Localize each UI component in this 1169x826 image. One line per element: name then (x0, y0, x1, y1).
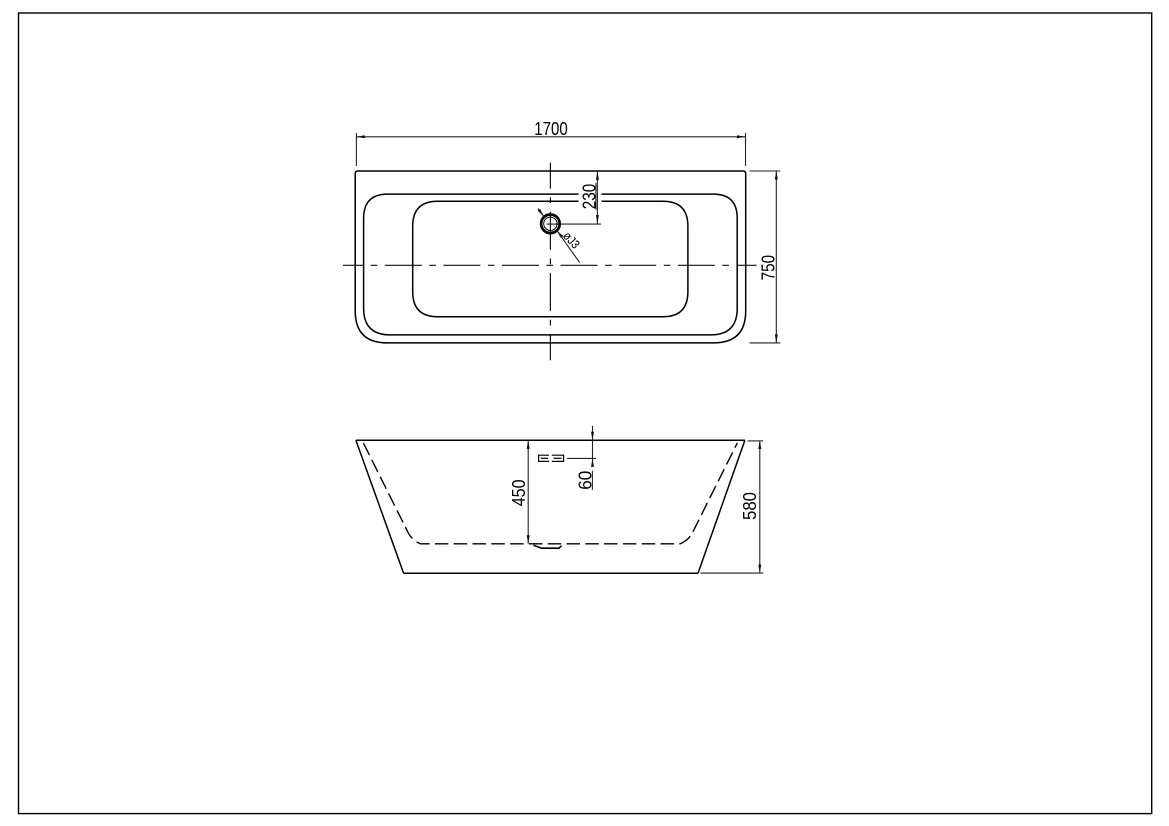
svg-text:60: 60 (575, 471, 595, 490)
svg-text:750: 750 (759, 255, 779, 281)
svg-text:1700: 1700 (534, 119, 568, 139)
svg-text:580: 580 (740, 492, 760, 520)
svg-text:230: 230 (579, 184, 599, 210)
svg-text:450: 450 (509, 479, 529, 506)
